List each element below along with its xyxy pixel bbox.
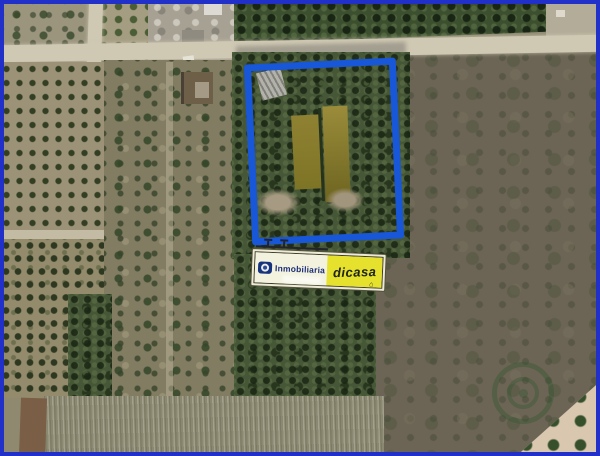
sign-post-left bbox=[267, 241, 269, 247]
satellite-photo: Inmobiliaria dicasa ⌂ bbox=[0, 0, 600, 456]
farm-track-vertical bbox=[166, 62, 173, 402]
highlighted-parcel-outline bbox=[244, 58, 404, 246]
sign-text-dicasa: dicasa bbox=[333, 264, 377, 280]
white-structure-top-right bbox=[556, 10, 565, 17]
sign-body: Inmobiliaria dicasa ⌂ bbox=[253, 251, 383, 289]
building-brown-roof bbox=[195, 82, 209, 98]
realtor-logo-globe-icon bbox=[258, 261, 273, 274]
orchard-upper-left bbox=[0, 62, 104, 234]
building-white bbox=[204, 4, 222, 15]
watermark-circular-stamp-icon bbox=[492, 362, 554, 424]
watermark-core-dot bbox=[519, 389, 528, 398]
sign-post-right bbox=[283, 241, 285, 247]
sign-text-inmobiliaria: Inmobiliaria bbox=[275, 263, 325, 275]
green-grove-strip bbox=[68, 294, 112, 398]
sign-blurred-phone-patch bbox=[282, 275, 320, 284]
plowed-field-bottom bbox=[44, 396, 384, 456]
farm-track-horizontal bbox=[0, 230, 104, 239]
sign-panel-left: Inmobiliaria bbox=[254, 252, 328, 285]
sign-panel-right: dicasa ⌂ bbox=[327, 255, 383, 287]
realtor-sign: Inmobiliaria dicasa ⌂ bbox=[250, 248, 387, 292]
sign-house-icon: ⌂ bbox=[369, 281, 374, 288]
brown-strip-bottom-left bbox=[19, 398, 47, 456]
